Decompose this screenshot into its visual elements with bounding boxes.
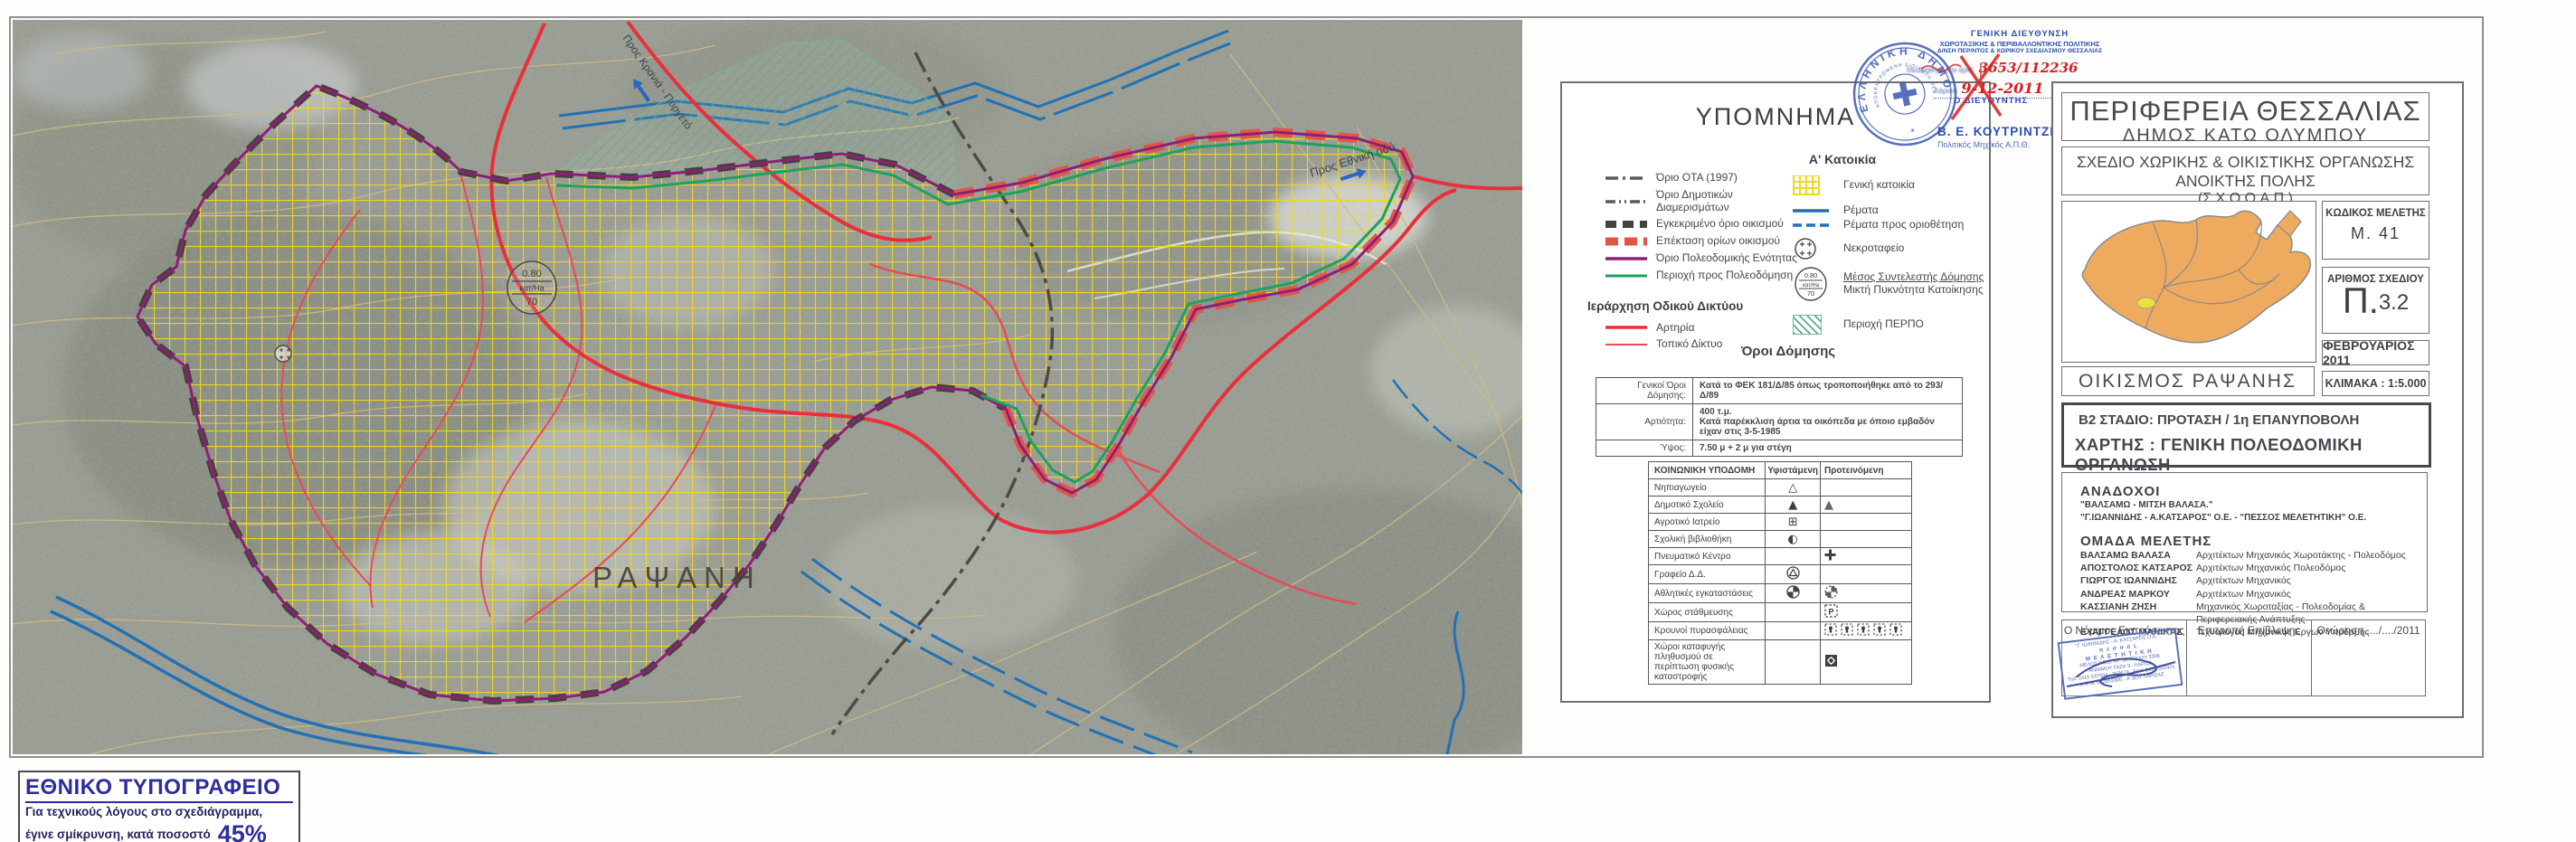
- legend-item: Γενική κατοικία: [1793, 175, 1987, 195]
- legend-item: Ρέματα: [1793, 204, 1987, 217]
- stage-line: Β2 ΣΤΑΔΙΟ: ΠΡΟΤΑΣΗ / 1η ΕΠΑΝΥΠΟΒΟΛΗ: [2079, 412, 2429, 428]
- table-row: Κρουνοί πυρασφάλειας: [1649, 622, 1912, 640]
- seal-cross-emblem: [1891, 80, 1919, 109]
- triangle-filled-dashed-icon: ▲: [1824, 498, 1833, 512]
- table-row: Αρτιότητα: 400 τ.μ. Κατά παρέκκλιση άρτι…: [1596, 404, 1963, 440]
- blue-solid-line-icon: [1793, 207, 1834, 214]
- gray-dashdotdot-line-icon: [1605, 198, 1647, 205]
- table-row: Αθλητικές εγκαταστάσεις: [1649, 584, 1912, 603]
- svg-text:70: 70: [1807, 289, 1814, 298]
- blue-dashed-line-icon: [1793, 222, 1834, 229]
- plan-number-box: ΑΡΙΘΜΟΣ ΣΧΕΔΙΟΥ Π.3.2: [2322, 267, 2429, 334]
- circle-triangle-icon: [1786, 566, 1800, 580]
- legend-item: Ρέματα προς οριοθέτηση: [1793, 219, 1987, 232]
- density-label-line2: Μικτή Πυκνότητα Κατοίκησης: [1843, 283, 1984, 296]
- svg-text:κατ/Ha: κατ/Ha: [1803, 283, 1820, 289]
- density-symbol: 0.80 κατ/Ha 70: [507, 261, 556, 314]
- scale-box: ΚΛΙΜΑΚΑ : 1:5.000: [2322, 371, 2429, 396]
- aerial-map: 0.80 κατ/Ha 70 ΡΑΨΑΝΗ Προς Εθνική οδό Πρ…: [13, 20, 1522, 754]
- triangle-filled-icon: ▲: [1788, 498, 1797, 512]
- artery-line-icon: [1605, 324, 1647, 331]
- gray-dashdot-line-icon: [1605, 175, 1647, 182]
- legend-item: Περιοχή ΠΕΡΠΟ: [1793, 315, 1987, 335]
- contractor-2: "Γ.ΙΩΑΝΝΙΔΗΣ - Α.ΚΑΤΣΑΡΟΣ" Ο.Ε. - "ΠΕΣΣΟ…: [2080, 512, 2427, 525]
- contractors-team-box: ΑΝΑΔΟΧΟΙ "ΒΑΛΣΑΜΩ - ΜΙΤΣΗ ΒΑΛΑΣΑ." "Γ.ΙΩ…: [2061, 472, 2428, 612]
- parking-square-icon: P: [1824, 604, 1838, 618]
- contractors-heading: ΑΝΑΔΟΧΟΙ: [2080, 484, 2427, 499]
- approval-label: Θεώρηση ..../..../2011: [2316, 624, 2420, 637]
- perpo-hatch-icon: [1793, 315, 1834, 335]
- local-road-line-icon: [1605, 341, 1647, 348]
- red-block-dash-line-icon: [1605, 237, 1647, 246]
- settlement-label: ΡΑΨΑΝΗ: [592, 561, 762, 594]
- legend-panel: ΥΠΟΜΝΗΜΑ Α' Κατοικία Όριο ΟΤΑ (1997) Όρι…: [1560, 81, 1991, 703]
- svg-text:κατ/Ha: κατ/Ha: [519, 284, 544, 293]
- region-title: ΠΕΡΙΦΕΡΕΙΑ ΘΕΣΣΑΛΙΑΣ: [2062, 95, 2429, 128]
- team-heading: ΟΜΑΔΑ ΜΕΛΕΤΗΣ: [2080, 534, 2427, 549]
- bold-cross-icon: [1824, 549, 1836, 561]
- plan-name-box: ΣΧΕΔΙΟ ΧΩΡΙΚΗΣ & ΟΙΚΙΣΤΙΚΗΣ ΟΡΓΑΝΩΣΗΣ ΑΝ…: [2061, 147, 2429, 195]
- green-solid-line-icon: [1605, 272, 1647, 279]
- cemetery-symbol: [275, 345, 291, 362]
- legend-left-column: Όριο ΟΤΑ (1997) Όριο Δημοτικών Διαμερισμ…: [1605, 172, 1800, 355]
- legend-item: Όριο ΟΤΑ (1997): [1605, 172, 1800, 184]
- contractor-1: "ΒΑΛΣΑΜΩ - ΜΙΤΣΗ ΒΑΛΑΣΑ.": [2080, 499, 2427, 512]
- title-box: ΠΕΡΙΦΕΡΕΙΑ ΘΕΣΣΑΛΙΑΣ ΔΗΜΟΣ ΚΑΤΩ ΟΛΥΜΠΟΥ: [2061, 92, 2429, 141]
- round-seal: ΕΛΛΗΝΙΚΗ ΔΗΜΟΚΡΑΤΙΑ ΑΠΟΚΕΝΤΡΩΜΕΝΗ ΔΙΟΙΚΗ…: [1845, 36, 1965, 154]
- title-block: ΠΕΡΙΦΕΡΕΙΑ ΘΕΣΣΑΛΙΑΣ ΔΗΜΟΣ ΚΑΤΩ ΟΛΥΜΠΟΥ …: [2051, 81, 2464, 718]
- reduction-percent: 45%: [218, 820, 267, 842]
- table-row: Αγροτικό Ιατρείο ⊞: [1649, 514, 1912, 531]
- refuge-square-icon: [1824, 654, 1838, 667]
- building-terms-table: Γενικοί Όροι Δόμησης: Κατά το ΦΕΚ 181/Δ/…: [1596, 377, 1963, 457]
- hydrant-squares-icon: [1824, 623, 1902, 636]
- committee-label: Επιτροπή Επίβλεψης: [2198, 624, 2301, 637]
- legend-item: Νεκροταφείο: [1793, 237, 1987, 260]
- legend-item: Επέκταση ορίων οικισμού: [1605, 235, 1800, 248]
- legend-item: Αρτηρία: [1605, 322, 1800, 335]
- map-type-line: ΧΑΡΤΗΣ : ΓΕΝΙΚΗ ΠΟΛΕΟΔΟΜΙΚΗ ΟΡΓΑΝΩΣΗ: [2075, 435, 2429, 475]
- aerial-map-panel: 0.80 κατ/Ha 70 ΡΑΨΑΝΗ Προς Εθνική οδό Πρ…: [13, 20, 1522, 754]
- note-line2: έγινε σμίκρυνση, κατά ποσοστό: [25, 828, 211, 841]
- social-infrastructure-table: ΚΟΙΝΩΝΙΚΗ ΥΠΟΔΟΜΗ Υφιστάμενη Προτεινόμεν…: [1648, 461, 1912, 685]
- settlement-name-box: ΟΙΚΙΣΜΟΣ ΡΑΨΑΝΗΣ: [2061, 366, 2315, 396]
- signature-scribble: [2062, 637, 2180, 691]
- svg-text:70: 70: [526, 297, 537, 307]
- legend-right-column: Γενική κατοικία Ρέματα Ρέματα προς οριοθ…: [1793, 175, 1987, 339]
- dark-block-dash-line-icon: [1605, 220, 1647, 229]
- density-label-line1: Μέσος Συντελεστής Δόμησης: [1843, 270, 1984, 283]
- quartered-circle-icon: [1786, 585, 1800, 599]
- legend-item: Όριο Πολεοδομικής Ενότητας: [1605, 252, 1800, 265]
- legend-item: Εγκεκριμένο όριο οικισμού: [1605, 218, 1800, 231]
- legend-item: Περιοχή προς Πολεοδόμηση: [1605, 270, 1800, 282]
- legend-item: 0.80 κατ/Ha 70 Μέσος Συντελεστής Δόμησης…: [1793, 266, 1987, 302]
- legend-item: Όριο Δημοτικών Διαμερισμάτων: [1605, 189, 1800, 214]
- table-row: Ύψος: 7.50 μ + 2 μ για στέγη: [1596, 440, 1963, 457]
- building-terms-heading: Όροι Δόμησης: [1698, 344, 1879, 359]
- svg-text:0.80: 0.80: [522, 269, 541, 279]
- date-box: ΦΕΒΡΟΥΑΡΙΟΣ 2011: [2322, 340, 2429, 365]
- table-row: Δημοτικό Σχολείο ▲ ▲: [1649, 497, 1912, 514]
- signature-table: Ο Νόμιμος Εκπρόσωπος "Γ. ΙΩΑΝΝΙΔΗΣ - Α. …: [2061, 620, 2426, 696]
- stamp-graphics: ΕΛΛΗΝΙΚΗ ΔΗΜΟΚΡΑΤΙΑ ΑΠΟΚΕΝΤΡΩΜΕΝΗ ΔΙΟΙΚΗ…: [1845, 36, 2080, 163]
- plan-sheet: 0.80 κατ/Ha 70 ΡΑΨΑΝΗ Προς Εθνική οδό Πρ…: [0, 0, 2576, 842]
- table-row: Γραφείο Δ.Δ.: [1649, 565, 1912, 584]
- table-row: Σχολική βιβλιοθήκη ◐: [1649, 531, 1912, 548]
- triangle-outline-icon: △: [1788, 481, 1797, 495]
- stage-box: Β2 ΣΤΑΔΙΟ: ΠΡΟΤΑΣΗ / 1η ΕΠΑΝΥΠΟΒΟΛΗ ΧΑΡΤ…: [2061, 402, 2431, 468]
- table-row: Χώροι καταφυγής πληθυσμού σε περίπτωση φ…: [1649, 640, 1912, 685]
- half-filled-circle-icon: ◐: [1788, 533, 1798, 546]
- svg-text:0.80: 0.80: [1804, 271, 1818, 279]
- svg-text:ΕΛΛΗΝΙΚΗ ΔΗΜΟΚΡΑΤΙΑ: ΕΛΛΗΝΙΚΗ ΔΗΜΟΚΡΑΤΙΑ: [1846, 36, 1956, 114]
- quartered-circle-dashed-icon: [1824, 585, 1838, 599]
- municipality-title: ΔΗΜΟΣ ΚΑΤΩ ΟΛΥΜΠΟΥ: [2062, 126, 2429, 147]
- cemetery-circle-icon: [1793, 237, 1834, 260]
- table-row: Χώρος στάθμευσης P: [1649, 603, 1912, 622]
- table-row: Πνευματικό Κέντρο: [1649, 548, 1912, 565]
- study-code-box: ΚΩΔΙΚΟΣ ΜΕΛΕΤΗΣ Μ. 41: [2322, 201, 2429, 260]
- note-line1: Για τεχνικούς λόγους στο σχεδιάγραμμα,: [25, 805, 293, 819]
- svg-text:P: P: [1828, 608, 1833, 617]
- table-row: Νηπιαγωγείο △: [1649, 479, 1912, 497]
- yellow-grid-icon: [1793, 175, 1834, 195]
- density-symbol-icon: 0.80 κατ/Ha 70: [1793, 266, 1834, 302]
- road-hierarchy-heading: Ιεράρχηση Οδικού Δικτύου: [1587, 299, 1800, 313]
- municipality-inset-map: [2061, 201, 2316, 363]
- national-press-note: ΕΘΝΙΚΟ ΤΥΠΟΓΡΑΦΕΙΟ Για τεχνικούς λόγους …: [18, 771, 300, 842]
- red-x-signature: [1952, 54, 2001, 119]
- plan-line1: ΣΧΕΔΙΟ ΧΩΡΙΚΗΣ & ΟΙΚΙΣΤΙΚΗΣ ΟΡΓΑΝΩΣΗΣ ΑΝ…: [2062, 153, 2429, 191]
- rapsani-highlight: [2137, 298, 2155, 308]
- table-row: Γενικοί Όροι Δόμησης: Κατά το ΦΕΚ 181/Δ/…: [1596, 378, 1963, 404]
- national-press-title: ΕΘΝΙΚΟ ΤΥΠΟΓΡΑΦΕΙΟ: [25, 775, 293, 803]
- svg-text:*: *: [1909, 126, 1917, 139]
- square-cross-icon: ⊞: [1788, 516, 1798, 529]
- table-header-row: ΚΟΙΝΩΝΙΚΗ ΥΠΟΔΟΜΗ Υφιστάμενη Προτεινόμεν…: [1649, 462, 1912, 479]
- purple-solid-line-icon: [1605, 255, 1647, 262]
